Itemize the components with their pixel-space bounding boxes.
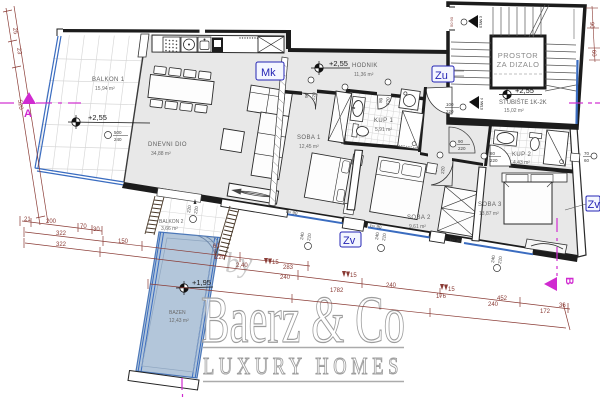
svg-text:STAN 3: STAN 3 (479, 16, 483, 28)
svg-text:A: A (24, 108, 32, 120)
svg-text:Zv: Zv (588, 199, 600, 211)
svg-text:21: 21 (24, 217, 31, 223)
svg-text:240: 240 (488, 302, 499, 308)
svg-text:100: 100 (446, 102, 454, 107)
svg-text:90: 90 (304, 92, 309, 98)
svg-text:1782: 1782 (330, 288, 344, 294)
svg-text:4,43 m²: 4,43 m² (513, 160, 530, 166)
svg-text:LUXURY HOMES: LUXURY HOMES (203, 354, 403, 380)
svg-text:PROSTOR: PROSTOR (498, 51, 539, 60)
svg-text:172: 172 (540, 309, 551, 315)
svg-text:Baerz & Co: Baerz & Co (201, 283, 405, 357)
svg-text:70: 70 (80, 224, 87, 230)
svg-text:220: 220 (385, 97, 391, 105)
svg-text:B: B (563, 277, 575, 285)
svg-text:220: 220 (490, 158, 498, 163)
svg-text:220: 220 (446, 109, 454, 114)
svg-text:+2,55: +2,55 (329, 59, 348, 68)
svg-text:200: 200 (46, 219, 57, 225)
svg-text:Zv: Zv (343, 235, 356, 247)
svg-text:322: 322 (56, 242, 67, 248)
svg-text:15,02 m²: 15,02 m² (504, 108, 524, 114)
svg-text:Mk: Mk (261, 67, 276, 79)
svg-text:60: 60 (584, 158, 590, 163)
svg-text:STUBIŠTE 1K-2K: STUBIŠTE 1K-2K (499, 99, 547, 106)
svg-text:SOBA 3: SOBA 3 (478, 202, 502, 208)
svg-text:SOBA 2: SOBA 2 (407, 215, 431, 221)
svg-text:SOBA 1: SOBA 1 (297, 135, 321, 141)
svg-text:2,40: 2,40 (236, 263, 248, 269)
svg-text:322: 322 (56, 231, 67, 237)
svg-text:240: 240 (386, 283, 397, 289)
svg-text:15: 15 (350, 273, 357, 279)
svg-text:240: 240 (114, 137, 122, 142)
svg-text:220: 220 (440, 166, 446, 174)
svg-text:70: 70 (584, 151, 590, 156)
svg-text:BAZEN: BAZEN (169, 310, 186, 316)
svg-text:30: 30 (93, 227, 100, 233)
svg-text:90: 90 (588, 22, 594, 30)
svg-text:500: 500 (114, 130, 122, 135)
svg-text:DNEVNI DIO: DNEVNI DIO (148, 142, 187, 148)
svg-text:KUP 2: KUP 2 (512, 152, 531, 158)
svg-text:BALKON 2: BALKON 2 (159, 219, 184, 225)
svg-text:15,94 m²: 15,94 m² (95, 86, 115, 92)
svg-text:283: 283 (283, 265, 294, 271)
svg-text:9,61 m²: 9,61 m² (409, 224, 426, 230)
svg-text:34,88 m²: 34,88 m² (151, 151, 171, 157)
svg-text:176: 176 (436, 294, 447, 300)
svg-text:50 90: 50 90 (449, 16, 454, 27)
svg-text:12,45 m²: 12,45 m² (299, 144, 319, 150)
svg-text:220: 220 (215, 255, 226, 261)
svg-text:BALKON 1: BALKON 1 (92, 77, 125, 83)
svg-text:220: 220 (311, 92, 317, 100)
svg-text:15: 15 (272, 260, 279, 266)
svg-text:60: 60 (590, 50, 596, 58)
svg-text:240: 240 (280, 275, 291, 281)
svg-text:13,87 m²: 13,87 m² (479, 211, 499, 217)
svg-text:11,36 m²: 11,36 m² (354, 72, 374, 78)
svg-text:150: 150 (118, 239, 129, 245)
svg-text:80: 80 (378, 97, 383, 103)
svg-text:Zu: Zu (435, 70, 448, 82)
svg-text:12,43 m²: 12,43 m² (169, 318, 189, 324)
svg-text:HODNIK: HODNIK (352, 63, 378, 69)
svg-text:+2,55: +2,55 (515, 86, 534, 95)
svg-text:ZA DIZALO: ZA DIZALO (497, 60, 540, 69)
svg-text:90: 90 (458, 139, 464, 144)
svg-text:36: 36 (559, 303, 566, 309)
svg-text:3,66 m²: 3,66 m² (161, 226, 178, 232)
svg-text:63: 63 (213, 244, 220, 250)
svg-text:15: 15 (448, 287, 455, 293)
svg-text:+2,55: +2,55 (88, 113, 107, 122)
svg-text:452: 452 (497, 296, 508, 302)
svg-text:5,91 m²: 5,91 m² (375, 127, 392, 133)
svg-text:80: 80 (490, 151, 496, 156)
svg-text:KUP 1: KUP 1 (374, 118, 393, 124)
svg-text:220: 220 (458, 146, 466, 151)
svg-text:STAN 4: STAN 4 (480, 98, 484, 110)
